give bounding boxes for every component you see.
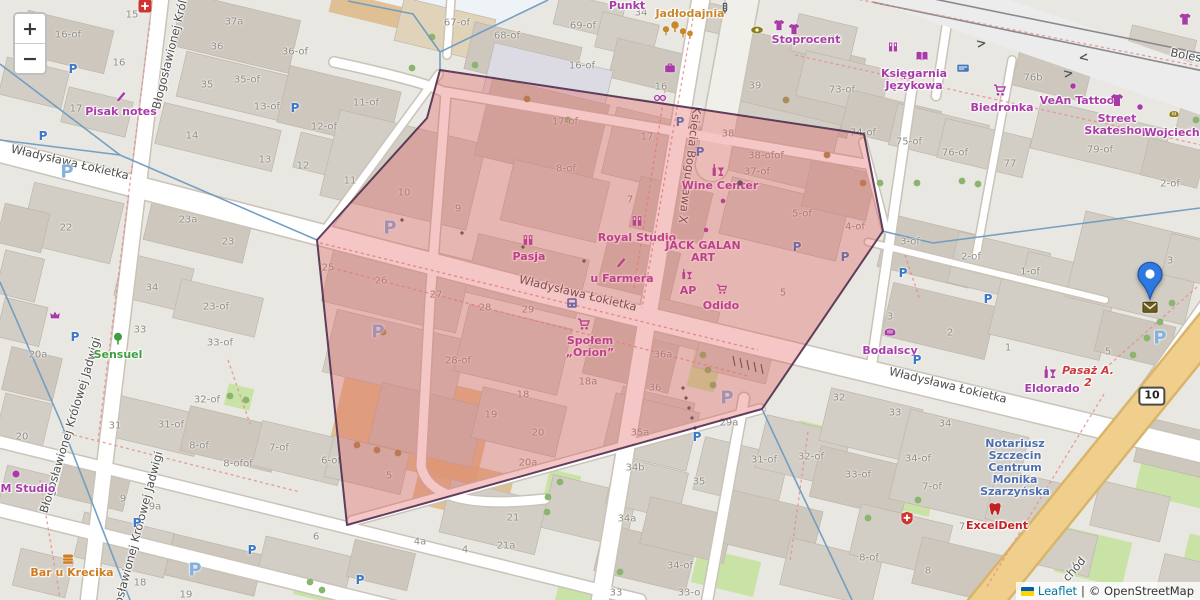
parking-icon: P bbox=[720, 388, 733, 409]
house-number-label: 8-of bbox=[556, 164, 576, 175]
crown-icon bbox=[49, 309, 61, 321]
dot-icon bbox=[12, 470, 21, 479]
zoom-control: + − bbox=[13, 12, 47, 75]
house-number-label: 21 bbox=[507, 513, 520, 524]
door-icon bbox=[522, 234, 535, 247]
house-number-label: 31-of bbox=[751, 455, 777, 466]
house-number-label: 4-of bbox=[845, 222, 865, 233]
house-number-label: 8-of bbox=[189, 441, 209, 452]
house-number-label: 9a bbox=[149, 502, 162, 513]
house-number-label: 5 bbox=[780, 288, 786, 299]
house-number-label: 14 bbox=[186, 131, 199, 142]
dot-icon bbox=[1070, 83, 1077, 90]
house-number-label: 67-of bbox=[444, 18, 470, 29]
house-number-label: 31 bbox=[109, 421, 122, 432]
house-number-label: 79-of bbox=[1087, 145, 1113, 156]
house-number-label: 2-of bbox=[961, 252, 981, 263]
house-number-label: 33-of bbox=[207, 338, 233, 349]
house-number-label: 36 bbox=[649, 383, 662, 394]
house-number-label: 36-of bbox=[282, 47, 308, 58]
house-number-label: 11-of bbox=[353, 98, 379, 109]
house-number-label: 25 bbox=[322, 263, 335, 274]
ukraine-flag-icon bbox=[1021, 587, 1034, 596]
house-number-label: 4a bbox=[414, 537, 427, 548]
house-number-label: 16 bbox=[113, 58, 126, 69]
parking-icon: P bbox=[899, 266, 908, 280]
house-number-label: 33 bbox=[610, 588, 623, 599]
house-number-label: 73-of bbox=[829, 85, 855, 96]
house-number-label: 31-of bbox=[158, 420, 184, 431]
tree-icon bbox=[685, 30, 695, 40]
street-name-label: chód bbox=[1060, 554, 1089, 584]
house-number-label: 23-of bbox=[203, 302, 229, 313]
glasses-icon bbox=[654, 91, 667, 104]
house-number-label: 3 bbox=[1167, 256, 1173, 267]
house-number-label: 2 bbox=[947, 328, 953, 339]
house-number-label: 37a bbox=[225, 17, 244, 28]
drink-icon bbox=[711, 163, 725, 177]
house-number-label: 35 bbox=[693, 477, 706, 488]
parking-icon: P bbox=[696, 145, 705, 159]
bread-icon bbox=[883, 325, 897, 339]
house-number-label: 7 bbox=[627, 195, 633, 206]
house-number-label: 33-o bbox=[678, 588, 701, 599]
house-number-label: 36 bbox=[211, 42, 224, 53]
house-number-label: 8-of bbox=[859, 553, 879, 564]
parking-icon: P bbox=[676, 115, 685, 129]
house-number-label: 23a bbox=[179, 215, 198, 226]
pencil-icon bbox=[615, 256, 627, 268]
poi-label: NotariuszSzczecinCentrumMonikaSzarzyńska bbox=[980, 438, 1050, 498]
house-number-label: 6 bbox=[313, 532, 319, 543]
house-number-label: 27 bbox=[430, 290, 443, 301]
house-number-label: 69-of bbox=[570, 21, 596, 32]
poi-label: Bar u Krecika bbox=[30, 567, 113, 579]
house-number-label: 34 bbox=[939, 419, 952, 430]
parking-icon: P bbox=[1153, 328, 1166, 349]
zoom-in-button[interactable]: + bbox=[15, 14, 45, 44]
house-number-label: 4 bbox=[462, 545, 468, 556]
osm-link[interactable]: © OpenStreetMap bbox=[1089, 584, 1194, 598]
parking-icon: P bbox=[984, 292, 993, 306]
house-number-label: 33 bbox=[889, 408, 902, 419]
pencil-icon bbox=[115, 90, 127, 102]
poi-label: Jadłodajnia bbox=[655, 8, 724, 20]
cart-icon bbox=[577, 317, 591, 331]
house-number-label: 32 bbox=[833, 393, 846, 404]
house-number-label: 32-of bbox=[194, 395, 220, 406]
house-number-label: 35a bbox=[631, 428, 650, 439]
poi-label: StreetSkateshop bbox=[1084, 113, 1149, 137]
poi-label: Pasaż A.2 bbox=[1062, 365, 1114, 389]
eye-icon bbox=[751, 24, 764, 37]
house-number-label: 13-of bbox=[254, 102, 280, 113]
parking-icon: P bbox=[248, 543, 257, 557]
house-number-label: 5 bbox=[386, 471, 392, 482]
dot-icon bbox=[703, 227, 709, 233]
parking-icon: P bbox=[69, 62, 78, 76]
house-number-label: 34a bbox=[618, 514, 637, 525]
dot-icon bbox=[720, 198, 726, 204]
attribution-separator: | bbox=[1081, 584, 1085, 598]
house-number-label: 15 bbox=[126, 10, 139, 21]
house-number-label: 12-of bbox=[311, 122, 337, 133]
house-number-label: 20 bbox=[532, 428, 545, 439]
house-number-label: 11 bbox=[344, 176, 357, 187]
poi-label: Pasja bbox=[513, 251, 546, 263]
tree-icon bbox=[111, 332, 125, 346]
tooth-icon bbox=[988, 502, 1003, 517]
poi-label: VeAn Tattoo bbox=[1040, 95, 1115, 107]
parking-icon: P bbox=[71, 330, 80, 344]
house-number-label: 34-of bbox=[905, 454, 931, 465]
house-number-label: 17 bbox=[70, 104, 83, 115]
house-number-label: 74-of bbox=[850, 128, 876, 139]
house-number-label: 13 bbox=[259, 155, 272, 166]
poi-label: u Farmera bbox=[590, 273, 653, 285]
shirt-icon bbox=[1179, 13, 1192, 26]
house-number-label: 29 bbox=[522, 305, 535, 316]
house-number-label: 20a bbox=[519, 458, 538, 469]
poi-label: M Studio bbox=[1, 483, 56, 495]
house-number-label: 6-of bbox=[321, 456, 341, 467]
house-number-label: 33-of bbox=[845, 470, 871, 481]
house-number-label: 3 bbox=[887, 312, 893, 323]
poi-label: Biedronka bbox=[970, 102, 1033, 114]
house-number-label: 32-of bbox=[798, 452, 824, 463]
map-marker-pin[interactable] bbox=[1133, 257, 1167, 301]
leaflet-link[interactable]: Leaflet bbox=[1038, 584, 1077, 598]
burger-icon bbox=[61, 552, 75, 566]
house-number-label: 39 bbox=[749, 81, 762, 92]
poi-label: Bodalscy bbox=[862, 345, 917, 357]
house-number-label: 7-of bbox=[922, 482, 942, 493]
house-number-label: 35 bbox=[201, 80, 214, 91]
poi-label: Odido bbox=[703, 300, 739, 312]
street-name-label: Boles bbox=[1169, 45, 1200, 65]
poi-label: KsięgarniaJęzykowa bbox=[881, 68, 947, 92]
house-number-label: 34b bbox=[625, 463, 644, 474]
house-number-label: 19 bbox=[180, 590, 193, 600]
poi-label: AP bbox=[680, 285, 697, 297]
house-number-label: 35-of bbox=[234, 75, 260, 86]
parking-icon: P bbox=[913, 353, 922, 367]
attribution-control: Leaflet | © OpenStreetMap bbox=[1016, 582, 1200, 600]
house-number-label: 20 bbox=[16, 432, 29, 443]
house-number-label: 8-ofof bbox=[223, 459, 252, 470]
house-number-label: 2-of bbox=[1160, 179, 1180, 190]
cart-icon bbox=[716, 283, 728, 295]
book-icon bbox=[915, 50, 929, 64]
house-number-label: 38 bbox=[722, 129, 735, 140]
poi-label: Punkt bbox=[609, 0, 645, 12]
house-number-label: 17-of bbox=[552, 117, 578, 128]
parking-icon: P bbox=[188, 560, 201, 581]
house-number-label: 28 bbox=[479, 303, 492, 314]
house-number-label: 38-ofof bbox=[748, 151, 784, 162]
house-number-label: 17 bbox=[641, 132, 654, 143]
briefcase-icon bbox=[664, 62, 676, 74]
house-number-label: 33 bbox=[134, 325, 147, 336]
house-number-label: 1-of bbox=[1020, 267, 1040, 278]
poi-label: Społem„Orion” bbox=[566, 335, 614, 359]
house-number-label: 23 bbox=[222, 237, 235, 248]
house-number-label: 76-of bbox=[942, 148, 968, 159]
house-number-label: 18a bbox=[579, 377, 598, 388]
house-number-label: 18 bbox=[134, 578, 147, 589]
drink-icon bbox=[681, 268, 693, 280]
house-number-label: 77 bbox=[1004, 159, 1017, 170]
house-number-label: 5 bbox=[1105, 347, 1111, 358]
house-number-label: 19 bbox=[485, 410, 498, 421]
medkit-icon bbox=[900, 511, 914, 525]
road-badge: 10 bbox=[1138, 387, 1165, 406]
house-number-label: 34-of bbox=[667, 561, 693, 572]
bread-icon bbox=[1168, 108, 1180, 120]
parking-icon: P bbox=[39, 129, 48, 143]
cross-icon bbox=[139, 0, 152, 13]
parking-icon: P bbox=[841, 250, 850, 264]
poi-label: Wojciechow bbox=[1145, 127, 1200, 139]
house-number-label: 22 bbox=[60, 223, 73, 234]
house-number-label: 36a bbox=[654, 350, 673, 361]
map-label-layer: Władysława ŁokietkaWładysława ŁokietkaWł… bbox=[0, 0, 1200, 600]
house-number-label: 68-of bbox=[494, 31, 520, 42]
dot-icon bbox=[1137, 104, 1144, 111]
poi-label: JACK GALANART bbox=[665, 240, 740, 264]
parking-icon: P bbox=[356, 573, 365, 587]
parking-icon: P bbox=[793, 240, 802, 254]
poi-label: Stoprocent bbox=[772, 34, 841, 46]
poi-label: Sensuel bbox=[94, 349, 143, 361]
house-number-label: 75-of bbox=[896, 137, 922, 148]
poi-label: Wine Center bbox=[682, 180, 759, 192]
shirt-icon bbox=[1110, 93, 1124, 107]
house-number-label: 26 bbox=[375, 276, 388, 287]
house-number-label: 34 bbox=[146, 283, 159, 294]
house-number-label: 76b bbox=[1023, 73, 1042, 84]
house-number-label: 28-of bbox=[445, 356, 471, 367]
parking-icon: P bbox=[383, 218, 396, 239]
street-name-label: Błogosławionej Królowej Jadwigi bbox=[149, 0, 207, 111]
door-icon bbox=[631, 215, 644, 228]
street-name-label: Władysława Łokietka bbox=[888, 364, 1009, 406]
shirt-icon bbox=[788, 23, 800, 35]
door-icon bbox=[887, 41, 899, 53]
parking-icon: P bbox=[133, 516, 142, 530]
zoom-out-button[interactable]: − bbox=[15, 44, 45, 73]
house-number-label: 7-of bbox=[269, 443, 289, 454]
house-number-label: 9 bbox=[120, 494, 126, 505]
poi-label: ExcelDent bbox=[966, 520, 1028, 532]
house-number-label: 20a bbox=[29, 350, 48, 361]
shirt-icon bbox=[773, 19, 785, 31]
house-number-label: 16-of bbox=[55, 30, 81, 41]
house-number-label: 9 bbox=[455, 204, 461, 215]
poi-label: Pisak notes bbox=[85, 106, 157, 118]
map-container[interactable]: Władysława ŁokietkaWładysława ŁokietkaWł… bbox=[0, 0, 1200, 600]
parking-icon: P bbox=[60, 162, 73, 183]
card-icon bbox=[957, 62, 970, 75]
house-number-label: 1 bbox=[1005, 343, 1011, 354]
parking-icon: P bbox=[693, 430, 702, 444]
house-number-label: 12 bbox=[297, 161, 310, 172]
house-number-label: 16-of bbox=[569, 61, 595, 72]
house-number-label: 29a bbox=[720, 418, 739, 429]
mail-icon bbox=[1142, 299, 1158, 315]
parking-icon: P bbox=[371, 322, 384, 343]
house-number-label: 8 bbox=[925, 566, 931, 577]
house-number-label: 18 bbox=[517, 390, 530, 401]
house-number-label: 7 bbox=[959, 522, 965, 533]
marker-pin-icon bbox=[1138, 262, 1162, 299]
house-number-label: 10 bbox=[398, 188, 411, 199]
bus-icon bbox=[566, 297, 578, 309]
house-number-label: 37-of bbox=[744, 167, 770, 178]
cart-icon bbox=[993, 83, 1007, 97]
house-number-label: 3-of bbox=[900, 237, 920, 248]
parking-icon: P bbox=[291, 101, 300, 115]
dot-icon bbox=[737, 180, 744, 187]
house-number-label: 21a bbox=[497, 541, 516, 552]
house-number-label: 5-of bbox=[792, 209, 812, 220]
drink-icon bbox=[1043, 365, 1057, 379]
traffic-icon bbox=[719, 2, 731, 14]
